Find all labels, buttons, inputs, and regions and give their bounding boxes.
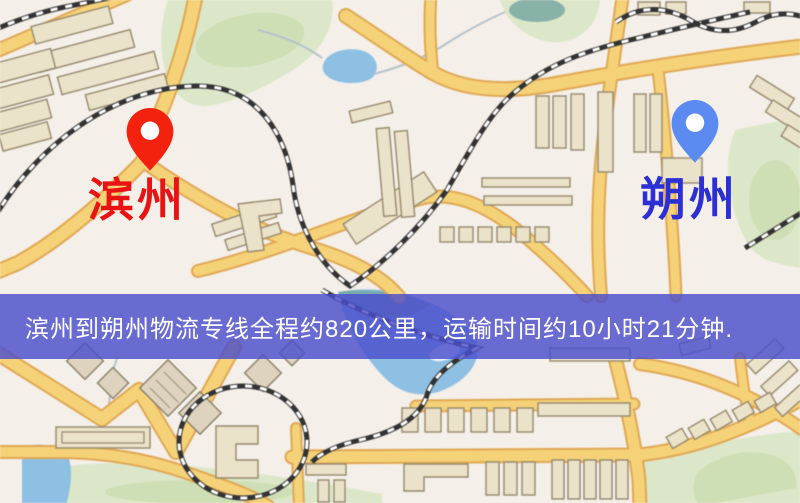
destination-pin-icon[interactable]: [668, 100, 722, 164]
map-screenshot: 滨州 朔州 滨州到朔州物流专线全程约820公里，运输时间约10小时21分钟.: [0, 0, 800, 503]
destination-city-label: 朔州: [640, 176, 738, 222]
origin-city-label: 滨州: [88, 177, 186, 223]
route-info-banner: 滨州到朔州物流专线全程约820公里，运输时间约10小时21分钟.: [0, 294, 800, 359]
map-canvas[interactable]: [0, 0, 800, 503]
route-info-text: 滨州到朔州物流专线全程约820公里，运输时间约10小时21分钟.: [0, 309, 733, 344]
map-svg: [0, 0, 800, 503]
origin-pin-icon[interactable]: [123, 108, 177, 172]
